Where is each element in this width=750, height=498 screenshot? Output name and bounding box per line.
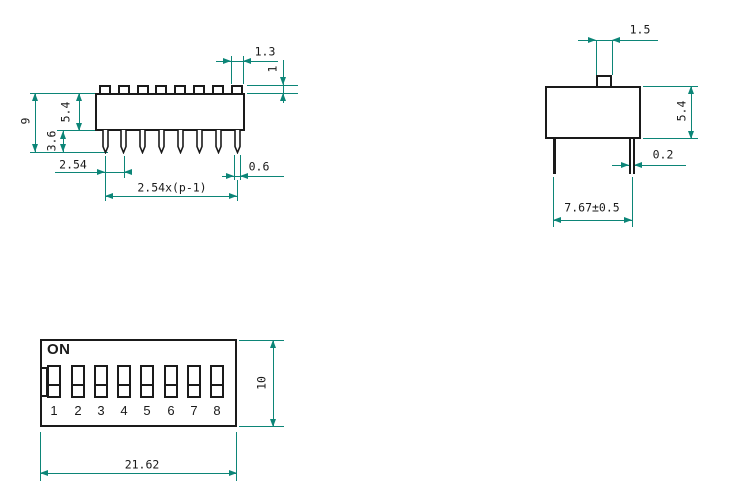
dip-switch-slider[interactable]	[117, 365, 131, 398]
pin	[234, 130, 241, 154]
dimension-arrow	[223, 58, 231, 64]
pin	[102, 130, 109, 154]
extension-line	[632, 177, 633, 227]
dimension-arrow	[226, 173, 234, 179]
dip-switch-slider[interactable]	[140, 365, 154, 398]
slider-divider	[164, 384, 178, 386]
dimension-arrow	[60, 131, 66, 139]
front-pin-width-dim-label: 0.6	[249, 161, 270, 174]
dimension-arrow	[688, 86, 694, 94]
dimension-arrow	[60, 144, 66, 152]
dimension-arrow	[105, 193, 113, 199]
switch-position-number: 4	[120, 403, 127, 418]
switch-position-number: 1	[50, 403, 57, 418]
top-body-height-dim-label: 10	[256, 376, 269, 390]
front-actuator-width-dim-label: 1.3	[255, 46, 276, 59]
pin	[196, 130, 203, 154]
dimension-arrow	[634, 162, 642, 168]
dimension-arrow	[270, 340, 276, 348]
dip-switch-slider[interactable]	[71, 365, 85, 398]
pin	[158, 130, 165, 154]
dimension-line	[55, 172, 131, 173]
pin-side	[553, 139, 556, 174]
extension-line	[247, 85, 298, 86]
extension-line	[237, 180, 238, 201]
dimension-arrow	[32, 144, 38, 152]
extension-line	[612, 40, 613, 75]
slider-divider	[71, 384, 85, 386]
dimension-line	[40, 473, 237, 474]
extension-line	[239, 340, 284, 341]
dimension-arrow	[553, 217, 561, 223]
dip-switch-slider[interactable]	[47, 365, 61, 398]
on-label: ON	[47, 341, 71, 358]
switch-position-number: 2	[74, 403, 81, 418]
dimension-arrow	[40, 470, 48, 476]
switch-position-number: 6	[167, 403, 174, 418]
front-pin-span-dim-label: 2.54x(p-1)	[137, 182, 206, 195]
dimension-line	[273, 340, 274, 427]
dimension-arrow	[229, 193, 237, 199]
front-pin-pitch-dim-label: 2.54	[59, 159, 87, 172]
extension-line	[247, 93, 298, 94]
pin	[215, 130, 222, 154]
slider-divider	[117, 384, 131, 386]
side-pin-thickness-dim-label: 0.2	[653, 149, 674, 162]
switch-position-number: 5	[143, 403, 150, 418]
extension-line	[239, 426, 284, 427]
dimension-arrow	[243, 58, 251, 64]
extension-line	[596, 40, 597, 75]
dimension-arrow	[588, 37, 596, 43]
pin	[139, 130, 146, 154]
dimension-line	[553, 220, 632, 221]
switch-position-number: 3	[97, 403, 104, 418]
dimension-line	[105, 196, 237, 197]
pin	[120, 130, 127, 154]
pin	[177, 130, 184, 154]
slider-divider	[210, 384, 224, 386]
front-body-height-dim-label: 5.4	[60, 102, 73, 123]
dimension-arrow	[76, 123, 82, 131]
extension-line	[30, 93, 95, 94]
side-body-height-dim-label: 5.4	[676, 101, 689, 122]
top-body-width-dim-label: 21.62	[125, 459, 160, 472]
front-total-height-dim-label: 9	[20, 118, 33, 125]
switch-body-side	[545, 86, 641, 139]
dimension-arrow	[32, 93, 38, 101]
dimension-arrow	[280, 93, 286, 101]
slider-divider	[47, 384, 61, 386]
dimension-arrow	[229, 470, 237, 476]
slider-divider	[187, 384, 201, 386]
dimension-arrow	[621, 162, 629, 168]
dip-switch-slider[interactable]	[187, 365, 201, 398]
front-pin-length-dim-label: 3.6	[46, 131, 59, 152]
dip-switch-slider[interactable]	[164, 365, 178, 398]
dimension-arrow	[240, 173, 248, 179]
dimension-arrow	[270, 419, 276, 427]
dip-switch-technical-drawing: 1.3 1 9 5.4 3.6 2.54 0.6 2.54x(p-1)	[0, 0, 750, 498]
dimension-arrow	[97, 169, 105, 175]
dip-switch-slider[interactable]	[210, 365, 224, 398]
extension-line	[30, 152, 108, 153]
side-pin-spacing-dim-label: 7.67±0.5	[564, 202, 619, 215]
switch-position-number: 7	[190, 403, 197, 418]
dimension-arrow	[612, 37, 620, 43]
dimension-arrow	[76, 93, 82, 101]
dimension-arrow	[624, 217, 632, 223]
dip-switch-slider[interactable]	[94, 365, 108, 398]
dimension-arrow	[280, 77, 286, 85]
pin-side	[629, 139, 635, 174]
front-actuator-height-dim-label: 1	[267, 66, 280, 73]
switch-position-number: 8	[213, 403, 220, 418]
dimension-arrow	[688, 131, 694, 139]
slider-divider	[94, 384, 108, 386]
slider-divider	[140, 384, 154, 386]
dimension-arrow	[124, 169, 132, 175]
switch-body-front	[95, 93, 245, 131]
side-actuator-width-dim-label: 1.5	[630, 24, 651, 37]
